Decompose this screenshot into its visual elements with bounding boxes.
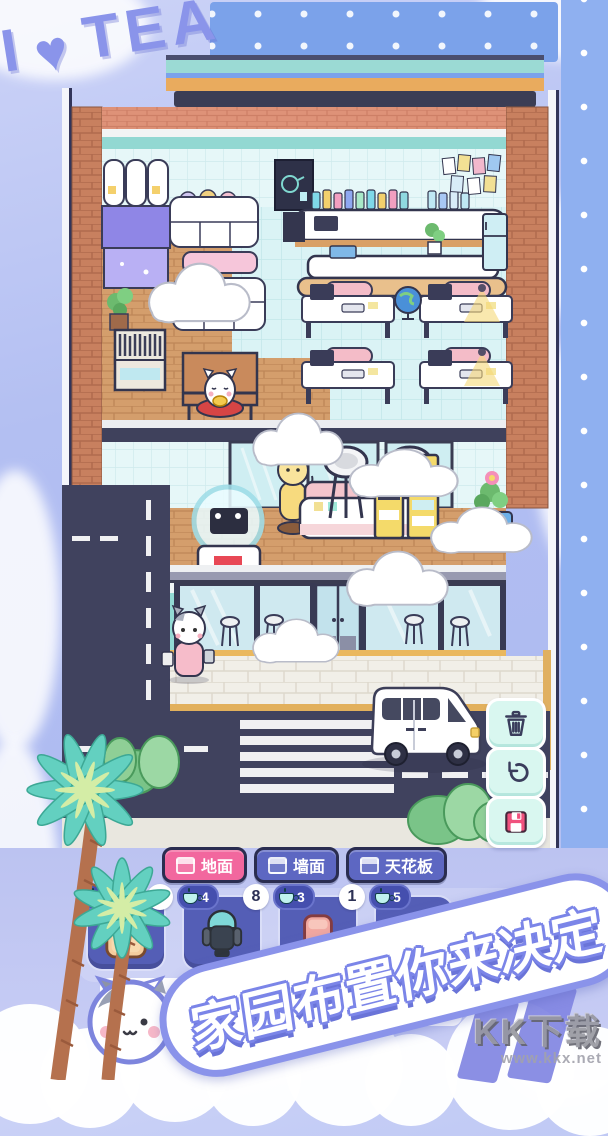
- save-button[interactable]: [486, 796, 546, 848]
- bottle-shelf: [312, 190, 469, 209]
- sign-i: I: [0, 14, 29, 86]
- trash-icon: [502, 710, 530, 738]
- count-badge: 1: [339, 884, 365, 910]
- watermark-url: www.kkx.net: [462, 1050, 602, 1067]
- save-icon: [502, 808, 530, 836]
- undo-button[interactable]: [486, 747, 546, 799]
- tab-ceiling[interactable]: 天花板: [346, 847, 447, 883]
- roof-board: [166, 2, 558, 107]
- count-badge: 8: [243, 884, 269, 910]
- undo-icon: [502, 759, 530, 787]
- fridge: [483, 214, 507, 270]
- palm-trees: [0, 690, 210, 1080]
- menu-board: [275, 160, 313, 210]
- beverage-machine: [102, 160, 170, 288]
- delete-button[interactable]: [486, 698, 546, 750]
- brick-wall-left: [72, 107, 102, 487]
- bookshelf: [115, 330, 165, 390]
- floor1-lounge: [102, 107, 512, 423]
- lucky-cat: [204, 369, 236, 407]
- price-badge: 5: [369, 884, 411, 910]
- wall-icon: [268, 857, 287, 874]
- heart-icon: ♥: [28, 14, 81, 86]
- teacup-icon: [375, 893, 390, 904]
- cloud: [365, 1034, 457, 1126]
- watermark-logo: KK下载: [462, 1004, 602, 1055]
- teacup-icon: [279, 893, 294, 904]
- palm-canopy: [27, 731, 173, 958]
- tab-wall[interactable]: 墙面: [254, 847, 339, 883]
- ceiling-icon: [360, 857, 379, 874]
- price-badge: 3: [273, 884, 315, 910]
- white-sofa: [170, 190, 258, 247]
